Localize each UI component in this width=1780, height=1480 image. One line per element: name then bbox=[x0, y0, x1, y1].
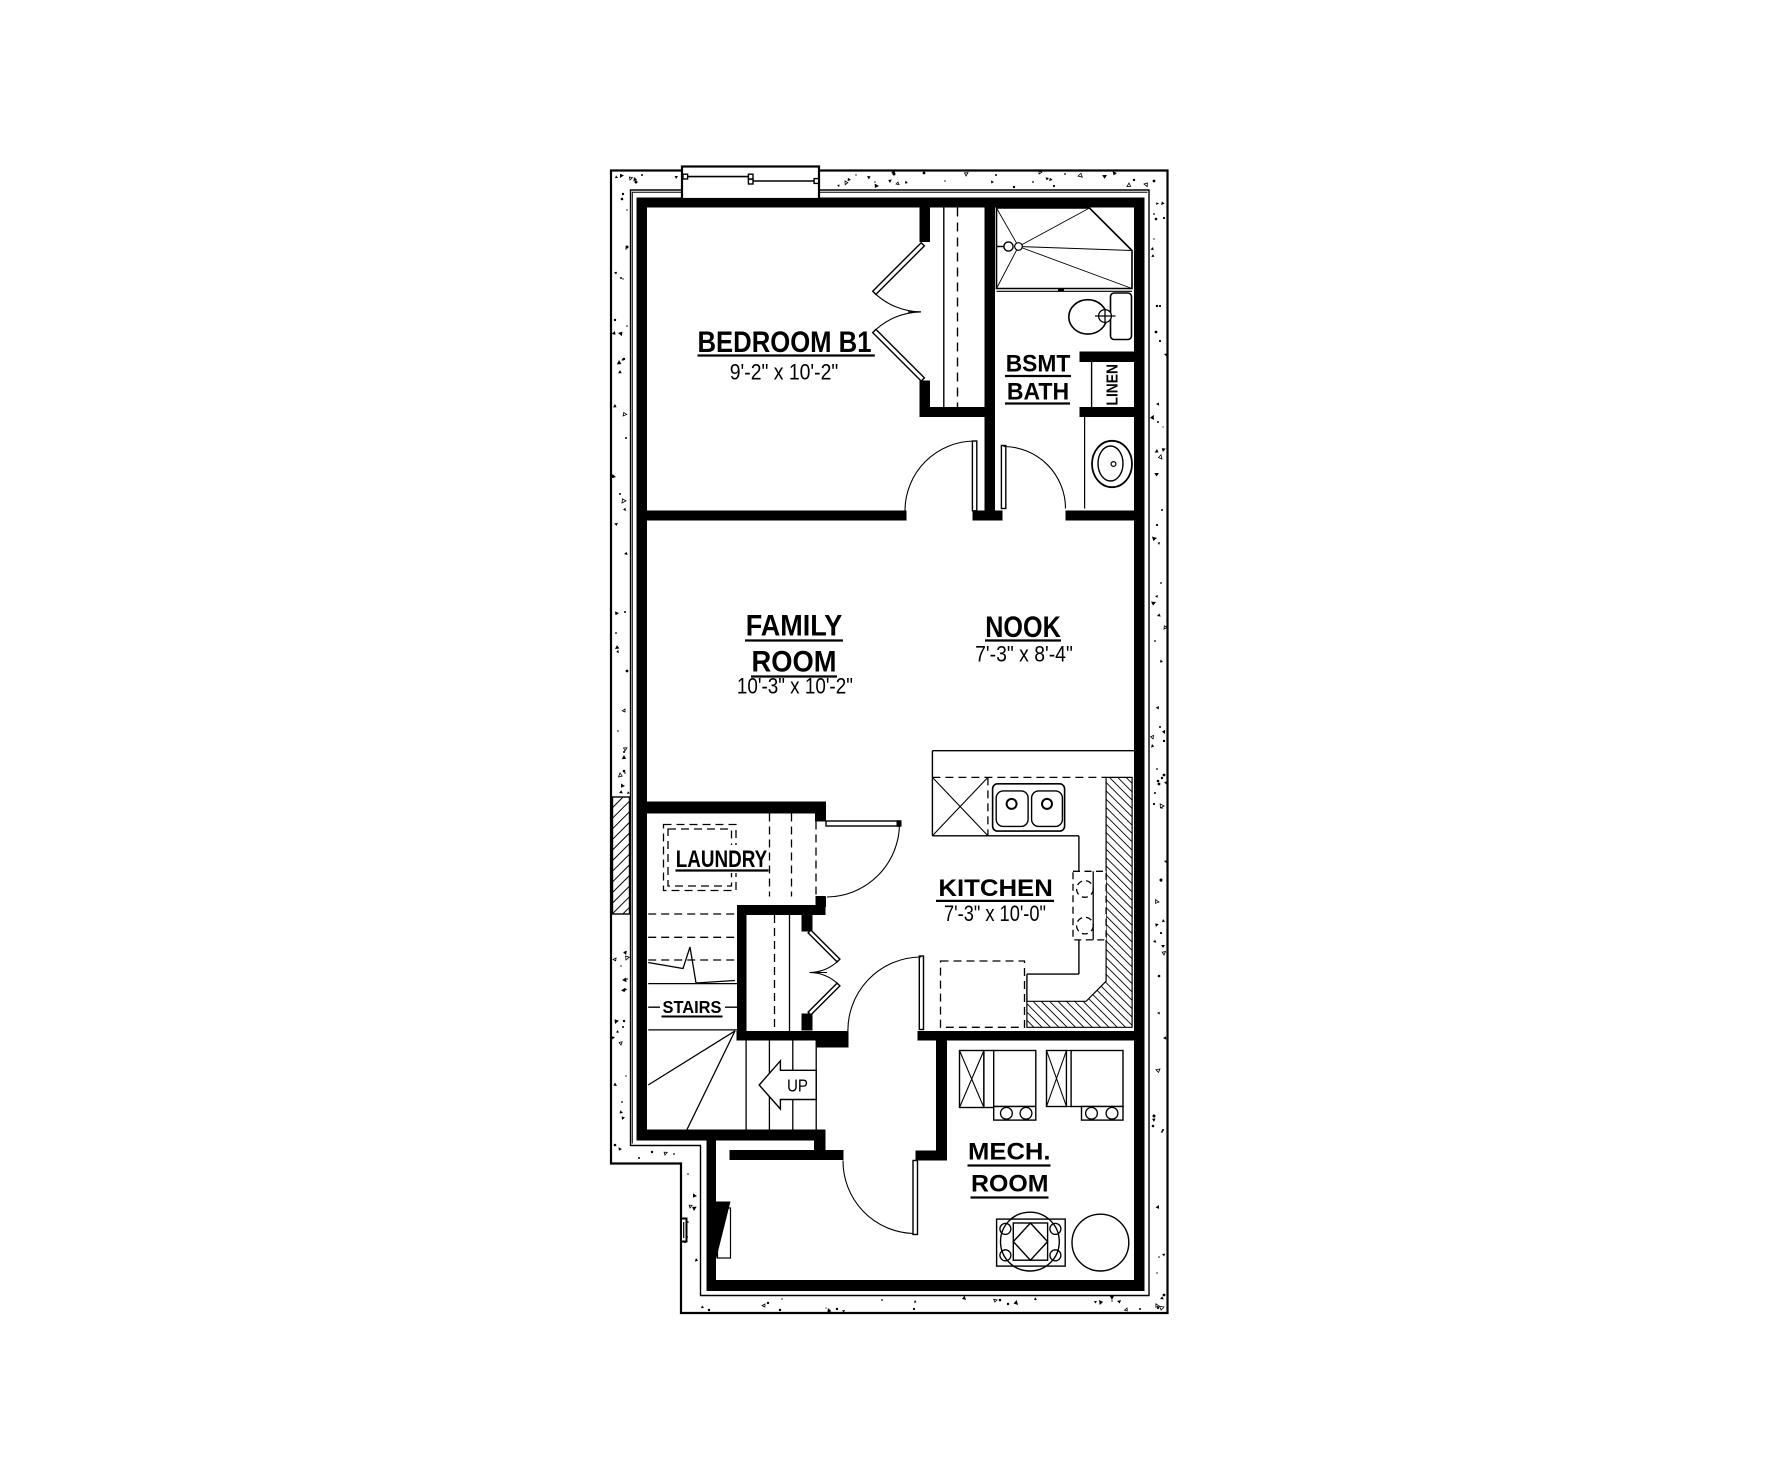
svg-text:KITCHEN: KITCHEN bbox=[938, 875, 1053, 902]
svg-text:ROOM: ROOM bbox=[971, 1171, 1049, 1198]
svg-text:LINEN: LINEN bbox=[1105, 364, 1122, 406]
svg-text:9'-2" x 10'-2": 9'-2" x 10'-2" bbox=[730, 360, 839, 385]
svg-text:7'-3" x 8'-4": 7'-3" x 8'-4" bbox=[975, 642, 1073, 667]
svg-text:UP: UP bbox=[787, 1076, 808, 1096]
svg-text:FAMILY: FAMILY bbox=[746, 610, 843, 643]
svg-text:STAIRS: STAIRS bbox=[663, 997, 722, 1017]
svg-text:10'-3" x 10'-2": 10'-3" x 10'-2" bbox=[737, 674, 853, 699]
svg-text:BATH: BATH bbox=[1007, 379, 1069, 406]
svg-text:MECH.: MECH. bbox=[968, 1138, 1051, 1165]
svg-text:BSMT: BSMT bbox=[1006, 351, 1071, 378]
svg-text:NOOK: NOOK bbox=[985, 611, 1061, 644]
svg-text:BEDROOM B1: BEDROOM B1 bbox=[698, 326, 872, 359]
svg-text:LAUNDRY: LAUNDRY bbox=[676, 846, 768, 873]
svg-text:7'-3" x 10'-0": 7'-3" x 10'-0" bbox=[944, 901, 1046, 926]
